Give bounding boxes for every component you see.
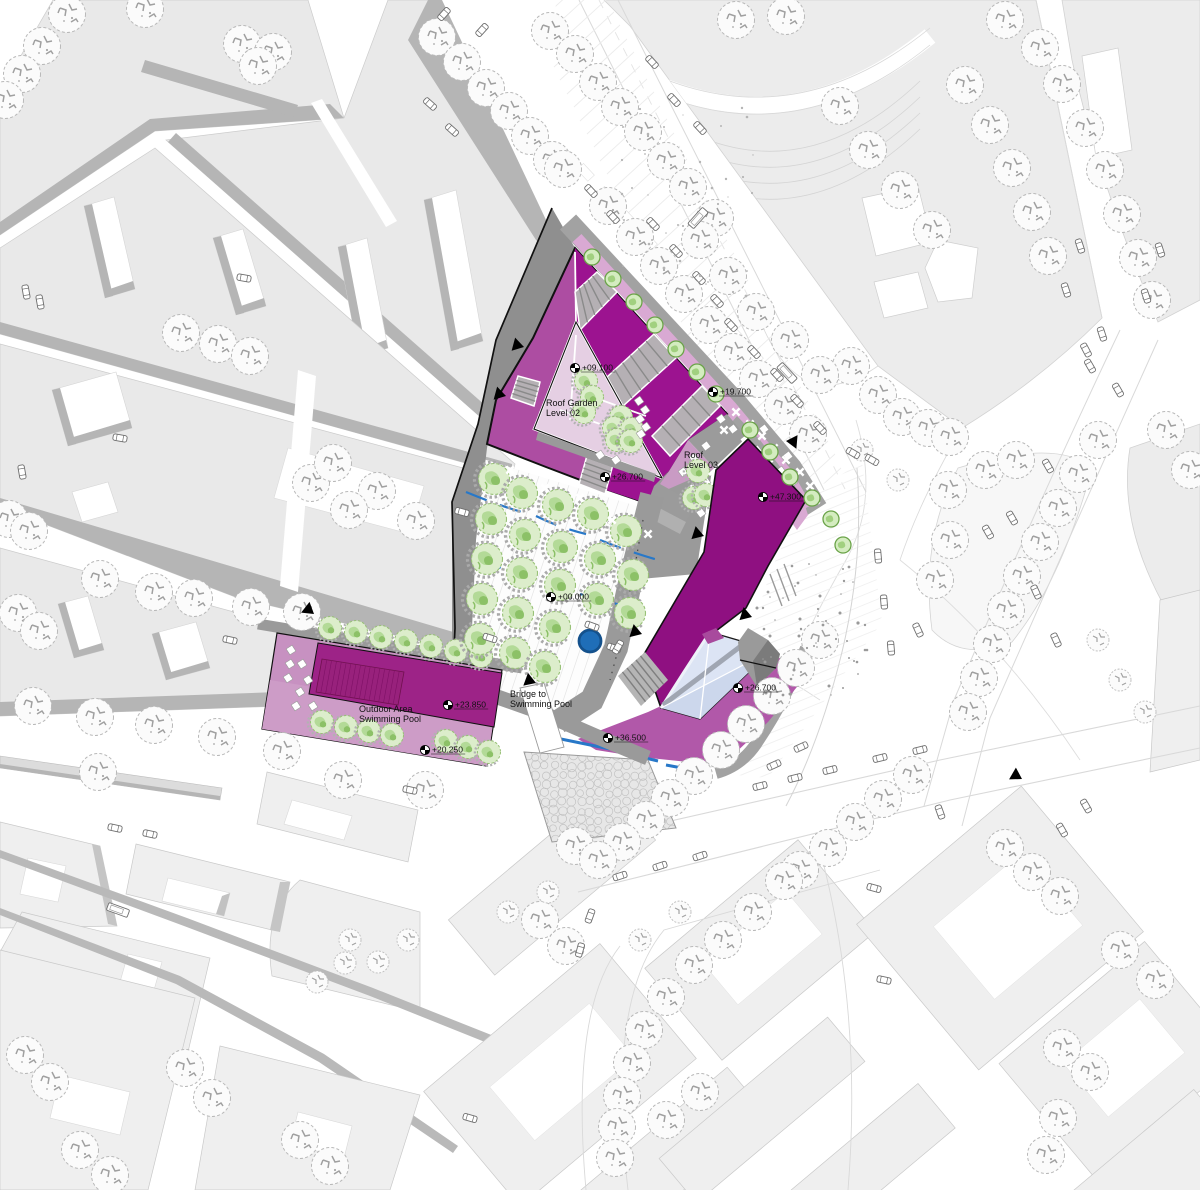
svg-text:Level 02: Level 02 — [546, 408, 580, 418]
svg-text:+36.500: +36.500 — [615, 733, 646, 743]
svg-text:+47.300: +47.300 — [770, 492, 801, 502]
svg-text:+09.100: +09.100 — [582, 363, 613, 373]
svg-text:Level 03: Level 03 — [684, 460, 718, 470]
svg-text:+23.850: +23.850 — [455, 700, 486, 710]
svg-text:+20.250: +20.250 — [432, 745, 463, 755]
svg-text:Bridge to: Bridge to — [510, 689, 546, 699]
svg-text:Roof Garden: Roof Garden — [546, 398, 598, 408]
svg-text:Swimming Pool: Swimming Pool — [359, 714, 421, 724]
svg-text:+26.700: +26.700 — [612, 472, 643, 482]
svg-text:+00.000: +00.000 — [558, 592, 589, 602]
svg-text:+19.700: +19.700 — [720, 387, 751, 397]
svg-text:+26.700: +26.700 — [745, 683, 776, 693]
svg-text:Swimming Pool: Swimming Pool — [510, 699, 572, 709]
svg-text:Outdoor Area: Outdoor Area — [359, 704, 413, 714]
svg-text:Roof: Roof — [684, 450, 704, 460]
